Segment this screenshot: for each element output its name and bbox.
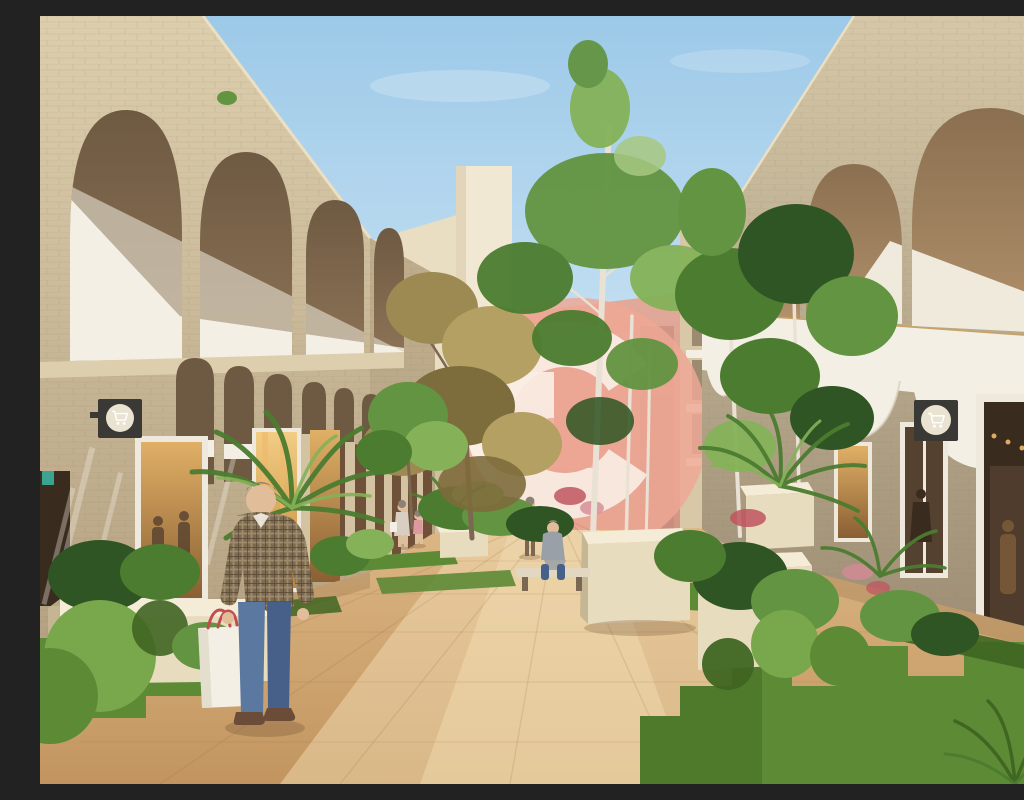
architectural-render <box>40 16 1024 784</box>
shop-sign-right <box>914 400 958 441</box>
render-canvas <box>40 16 1024 784</box>
man-head <box>246 485 276 515</box>
shoe <box>264 708 295 721</box>
shop-sign-teal <box>42 471 54 485</box>
roof-plant <box>217 91 237 105</box>
round-bush <box>751 610 819 678</box>
shoe <box>234 712 265 725</box>
shop-window-right-large <box>976 394 1024 646</box>
cloud <box>670 49 810 73</box>
shop-window-right-door <box>900 422 948 578</box>
small-shopping-bag <box>390 522 397 532</box>
cloud <box>370 70 550 102</box>
